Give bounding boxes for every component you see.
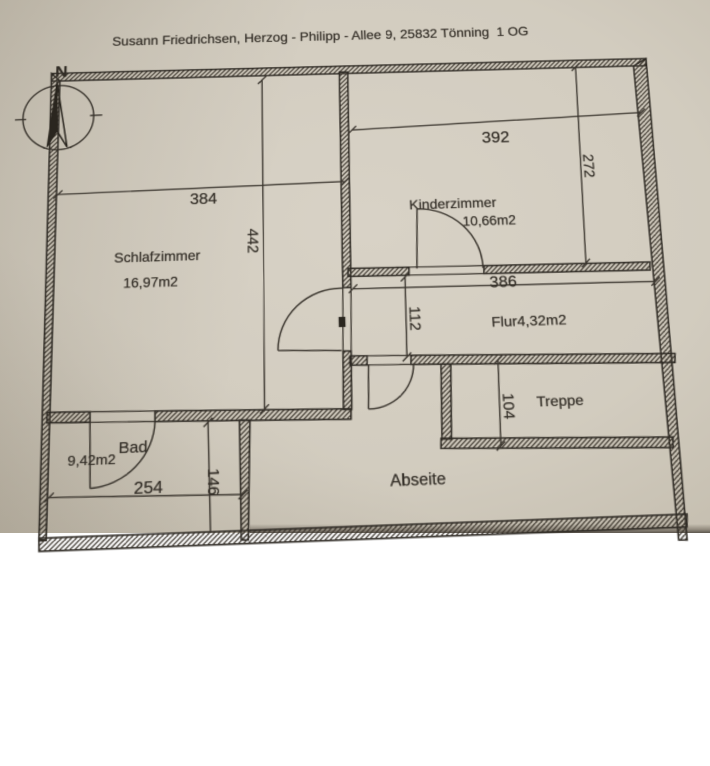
svg-text:386: 386 xyxy=(489,273,517,291)
svg-text:Treppe: Treppe xyxy=(536,392,584,410)
svg-text:N: N xyxy=(55,63,68,81)
svg-text:146: 146 xyxy=(203,468,221,496)
svg-text:Flur4,32m2: Flur4,32m2 xyxy=(491,312,567,330)
svg-text:Susann Friedrichsen, Herzog -: Susann Friedrichsen, Herzog - Philipp - … xyxy=(112,24,529,49)
svg-text:392: 392 xyxy=(481,129,510,146)
svg-text:10,66m2: 10,66m2 xyxy=(462,212,516,229)
svg-text:442: 442 xyxy=(244,228,262,253)
svg-text:Kinderzimmer: Kinderzimmer xyxy=(409,195,497,213)
svg-text:254: 254 xyxy=(134,478,164,498)
svg-text:9,42m2: 9,42m2 xyxy=(67,451,116,470)
svg-text:112: 112 xyxy=(405,306,424,331)
svg-text:104: 104 xyxy=(498,393,517,420)
svg-text:16,97m2: 16,97m2 xyxy=(123,274,178,291)
svg-text:272: 272 xyxy=(579,154,598,178)
svg-text:Schlafzimmer: Schlafzimmer xyxy=(114,248,201,266)
svg-text:384: 384 xyxy=(190,190,218,208)
svg-text:Abseite: Abseite xyxy=(390,470,447,490)
svg-text:Bad: Bad xyxy=(118,439,147,458)
